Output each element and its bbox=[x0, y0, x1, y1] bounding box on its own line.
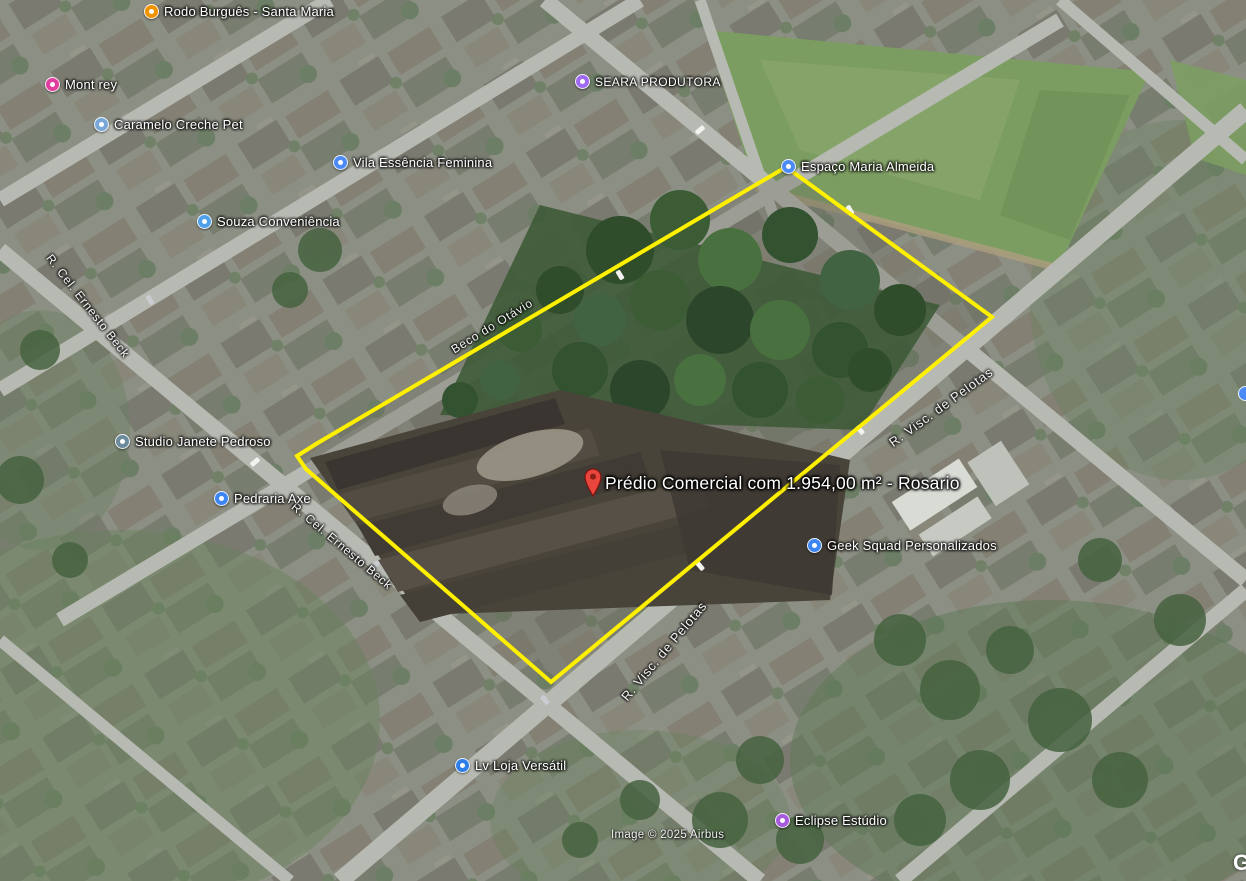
property-label[interactable]: Prédio Comercial com 1.954,00 m² - Rosar… bbox=[605, 473, 960, 494]
poi-label[interactable]: Caramelo Creche Pet bbox=[114, 117, 243, 132]
imagery-attribution: Image © 2025 Airbus bbox=[611, 829, 724, 841]
poi-label[interactable]: Eclipse Estúdio bbox=[795, 813, 887, 828]
poi-label[interactable]: Souza Conveniência bbox=[217, 214, 340, 229]
poi-label[interactable]: Studio Janete Pedroso bbox=[135, 434, 271, 449]
map-viewport[interactable]: Rodo Burguês - Santa Maria Mont rey Cara… bbox=[0, 0, 1246, 881]
poi-label[interactable]: Pedraria Axe bbox=[234, 491, 311, 506]
placemark-pin-icon[interactable] bbox=[584, 468, 602, 498]
restaurant-poi-icon[interactable] bbox=[144, 4, 159, 19]
poi-label[interactable]: Espaço Maria Almeida bbox=[801, 159, 934, 174]
studio-poi-icon[interactable] bbox=[775, 813, 790, 828]
google-logo-partial: G bbox=[1233, 850, 1246, 876]
poi-label[interactable]: Lv Loja Versátil bbox=[475, 758, 566, 773]
shopping-bag-poi-icon[interactable] bbox=[214, 491, 229, 506]
property-placemark[interactable]: Prédio Comercial com 1.954,00 m² - Rosar… bbox=[584, 468, 960, 498]
shopping-bag-poi-icon[interactable] bbox=[807, 538, 822, 553]
event-venue-poi-icon[interactable] bbox=[781, 159, 796, 174]
shopping-poi-icon[interactable] bbox=[45, 77, 60, 92]
poi-label[interactable]: Rodo Burguês - Santa Maria bbox=[164, 4, 334, 19]
store-poi-icon[interactable] bbox=[333, 155, 348, 170]
convenience-store-poi-icon[interactable] bbox=[197, 214, 212, 229]
poi-label[interactable]: Vila Essência Feminina bbox=[353, 155, 492, 170]
poi-label[interactable]: Mont rey bbox=[65, 77, 117, 92]
shopping-bag-poi-icon[interactable] bbox=[455, 758, 470, 773]
poi-label[interactable]: Geek Squad Personalizados bbox=[827, 538, 997, 553]
clipped-poi-icon[interactable] bbox=[1238, 386, 1246, 401]
studio-poi-icon[interactable] bbox=[115, 434, 130, 449]
poi-label[interactable]: SEARA PRODUTORA bbox=[595, 75, 721, 89]
pet-care-poi-icon[interactable] bbox=[94, 117, 109, 132]
business-poi-icon[interactable] bbox=[575, 74, 590, 89]
